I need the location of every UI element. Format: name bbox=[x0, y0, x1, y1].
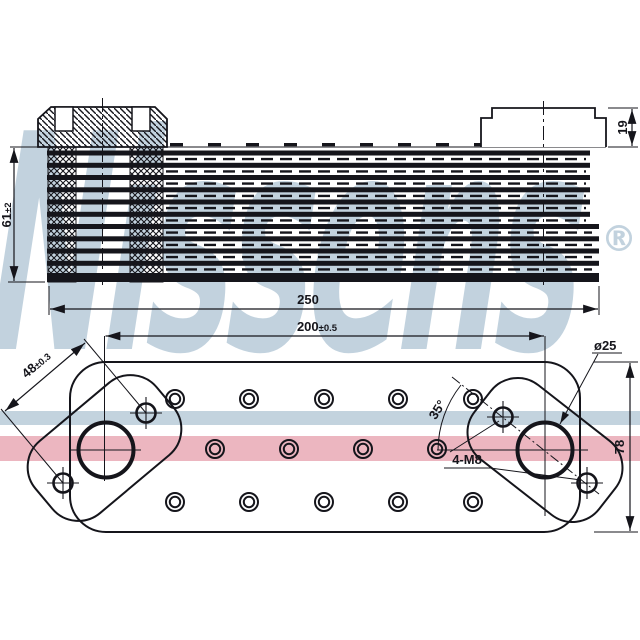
dim-text-body-width: 78 bbox=[612, 440, 627, 454]
oil-cooler-drawing: 61±2 250 19 bbox=[0, 0, 640, 640]
dim-text-thread: 4-M8 bbox=[452, 452, 482, 467]
dimension-port-spacing-200: 200±0.5 bbox=[106, 319, 545, 336]
dim-text-port-diameter: ø25 bbox=[594, 338, 616, 353]
dim-text-height: 61±2 bbox=[0, 203, 14, 228]
m8-hole bbox=[571, 467, 603, 499]
m8-hole bbox=[487, 401, 519, 433]
connector-bolt-slot bbox=[132, 107, 150, 131]
connector-bolt-slot bbox=[55, 107, 73, 131]
callout-port-diameter: ø25 bbox=[560, 338, 622, 424]
technical-drawing-page: Nissens ® bbox=[0, 0, 640, 640]
side-view: 61±2 250 19 bbox=[0, 98, 638, 315]
dim-text-angle: 35° bbox=[426, 397, 449, 422]
dim-text-port-spacing: 200±0.5 bbox=[297, 319, 338, 334]
callout-angle: 35° bbox=[426, 385, 461, 450]
dimension-length-250: 250 bbox=[49, 286, 599, 315]
dimension-bolt-spacing-48: 48±0.3 bbox=[1, 339, 146, 483]
bottom-view: 200±0.5 48±0.3 ø25 78 bbox=[1, 319, 638, 536]
dim-text-bolt-spacing: 48±0.3 bbox=[19, 348, 54, 381]
dim-text-connector: 19 bbox=[615, 120, 630, 134]
dimension-connector-19: 19 bbox=[608, 108, 638, 147]
dimension-height-61: 61±2 bbox=[0, 148, 45, 282]
dim-text-length: 250 bbox=[297, 292, 319, 307]
